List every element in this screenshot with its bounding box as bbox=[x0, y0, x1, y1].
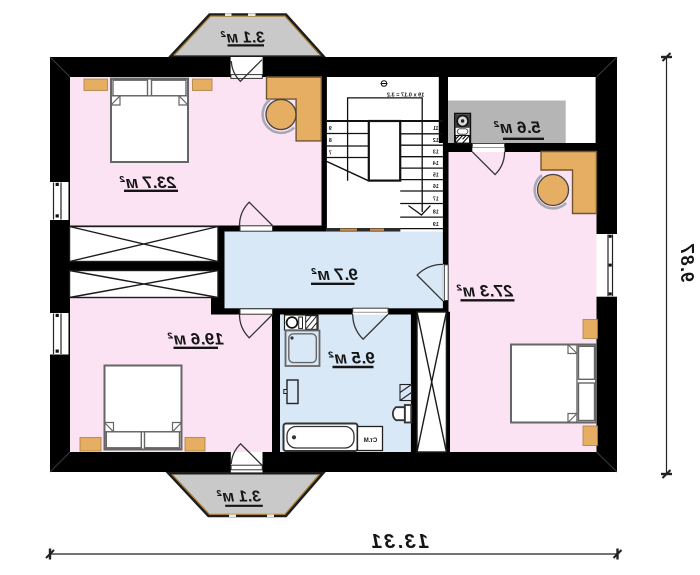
svg-text:3.1 м²: 3.1 м² bbox=[216, 489, 261, 506]
svg-text:9: 9 bbox=[329, 126, 332, 132]
svg-text:3.1 м²: 3.1 м² bbox=[220, 30, 265, 47]
svg-text:12: 12 bbox=[433, 138, 439, 144]
svg-text:15: 15 bbox=[433, 173, 439, 179]
svg-text:23.7 м²: 23.7 м² bbox=[119, 173, 177, 192]
svg-text:7: 7 bbox=[329, 151, 332, 157]
svg-text:19: 19 bbox=[433, 222, 439, 228]
svg-text:13: 13 bbox=[433, 150, 439, 156]
svg-text:14: 14 bbox=[433, 161, 439, 167]
svg-text:17: 17 bbox=[433, 197, 439, 203]
svg-text:Ст.М: Ст.М bbox=[364, 438, 377, 444]
svg-text:19.6 м²: 19.6 м² bbox=[167, 330, 224, 349]
svg-text:13.31: 13.31 bbox=[369, 531, 429, 553]
svg-text:27.3 м²: 27.3 м² bbox=[456, 282, 514, 301]
svg-text:5.6 м²: 5.6 м² bbox=[493, 118, 541, 137]
svg-text:16: 16 bbox=[433, 184, 439, 190]
svg-text:19 x 0.17 = 3.2: 19 x 0.17 = 3.2 bbox=[387, 93, 424, 99]
svg-text:9.5 м²: 9.5 м² bbox=[327, 349, 375, 368]
svg-text:9.87: 9.87 bbox=[677, 243, 697, 282]
svg-text:11: 11 bbox=[433, 126, 439, 132]
svg-text:9.7 м²: 9.7 м² bbox=[310, 265, 358, 284]
svg-text:8: 8 bbox=[329, 138, 332, 144]
svg-text:18: 18 bbox=[433, 210, 439, 216]
